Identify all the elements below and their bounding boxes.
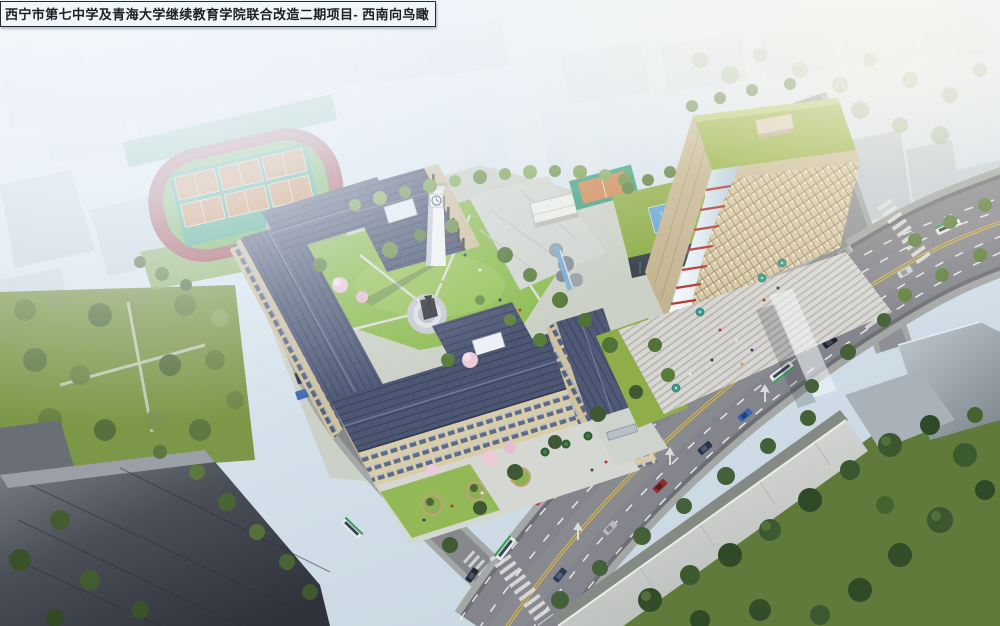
aerial-rendering-scene: 西宁市第七中学及青海大学继续教育学院联合改造二期项目- 西南向鸟瞰	[0, 0, 1000, 626]
title-text: 西宁市第七中学及青海大学继续教育学院联合改造二期项目- 西南向鸟瞰	[5, 7, 429, 22]
haze-overlays	[0, 0, 1000, 626]
rendering-canvas	[0, 0, 1000, 626]
title-bar: 西宁市第七中学及青海大学继续教育学院联合改造二期项目- 西南向鸟瞰	[0, 1, 436, 27]
